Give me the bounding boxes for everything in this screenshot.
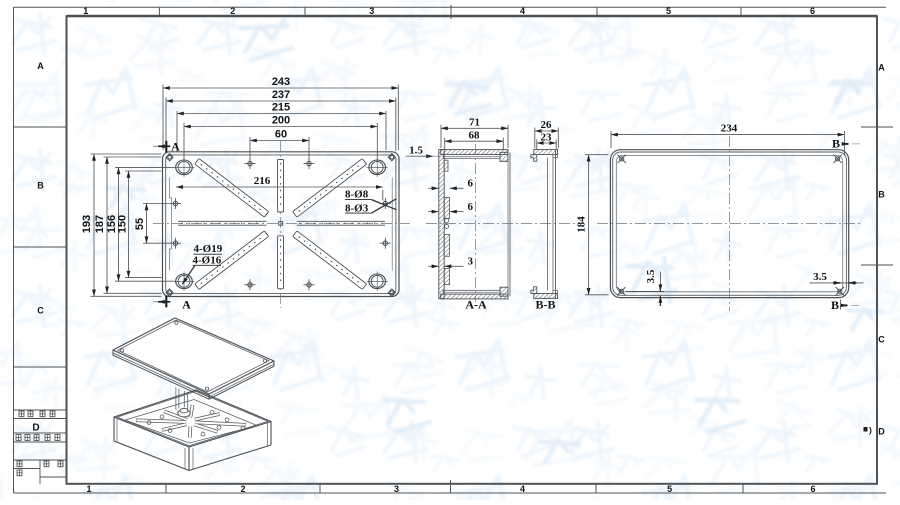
svg-text:5: 5: [667, 484, 672, 494]
svg-text:26: 26: [541, 119, 553, 131]
svg-text:6: 6: [468, 178, 474, 190]
svg-text:A: A: [878, 63, 885, 73]
svg-text:6: 6: [810, 484, 815, 494]
svg-text:1: 1: [86, 484, 91, 494]
svg-text:4: 4: [520, 6, 525, 16]
svg-text:3.5: 3.5: [645, 269, 657, 283]
svg-text:3: 3: [468, 256, 474, 268]
svg-text:4: 4: [520, 484, 525, 494]
svg-text:200: 200: [272, 115, 290, 127]
svg-text:1: 1: [83, 6, 88, 16]
svg-text:187: 187: [94, 215, 106, 233]
svg-text:2: 2: [230, 6, 235, 16]
svg-text:C: C: [878, 335, 885, 345]
svg-text:): ): [869, 425, 872, 435]
svg-text:3: 3: [369, 6, 374, 16]
svg-text:237: 237: [272, 89, 290, 101]
svg-text:60: 60: [275, 129, 287, 141]
svg-text:5: 5: [666, 6, 671, 16]
svg-text:A-A: A-A: [465, 298, 487, 312]
svg-text:D: D: [32, 423, 39, 434]
svg-text:4-Ø19: 4-Ø19: [194, 243, 223, 255]
svg-text:150: 150: [117, 215, 129, 233]
svg-text:A: A: [171, 140, 180, 154]
svg-text:8-Ø8: 8-Ø8: [345, 189, 369, 201]
svg-text:4-Ø16: 4-Ø16: [193, 255, 222, 267]
svg-text:215: 215: [272, 102, 290, 114]
svg-text:6: 6: [468, 201, 474, 213]
svg-text:184: 184: [576, 216, 588, 233]
svg-text:D: D: [878, 427, 885, 437]
svg-text:193: 193: [81, 215, 93, 233]
svg-text:71: 71: [469, 116, 480, 128]
svg-text:216: 216: [254, 175, 271, 187]
svg-text:C: C: [37, 306, 44, 316]
svg-text:A: A: [37, 61, 44, 71]
svg-text:2: 2: [240, 484, 245, 494]
svg-text:3.5: 3.5: [813, 271, 827, 283]
svg-text:55: 55: [134, 218, 146, 230]
svg-text:1.5: 1.5: [409, 145, 423, 157]
svg-text:234: 234: [721, 122, 738, 134]
svg-text:B: B: [878, 190, 885, 200]
svg-text:3: 3: [394, 484, 399, 494]
svg-text:B: B: [37, 181, 44, 191]
svg-text:B: B: [832, 137, 840, 151]
svg-text:6: 6: [810, 6, 815, 16]
svg-text:B-B: B-B: [535, 298, 555, 312]
svg-text:68: 68: [469, 129, 481, 141]
svg-text:243: 243: [272, 76, 290, 88]
svg-text:B: B: [831, 298, 839, 312]
svg-text:23: 23: [541, 131, 553, 143]
svg-text:A: A: [182, 298, 191, 312]
